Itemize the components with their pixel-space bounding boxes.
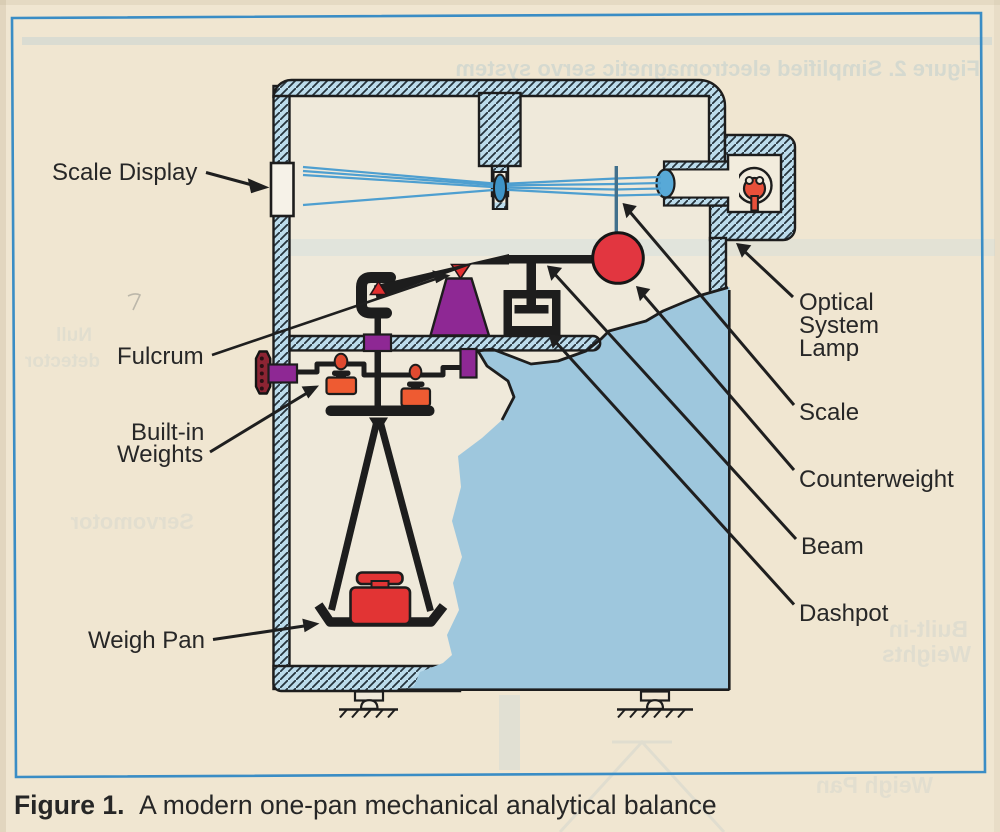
svg-text:Figure 1. A modern one-pan me: Figure 1. A modern one-pan mechanical an… [14,790,717,820]
svg-text:Scale: Scale [799,399,859,426]
svg-text:Beam: Beam [801,533,864,560]
svg-text:Weights: Weights [117,441,203,468]
svg-text:Weigh Pan: Weigh Pan [816,772,933,798]
svg-text:Weights: Weights [882,641,971,667]
svg-text:Dashpot: Dashpot [799,600,889,627]
svg-text:Scale Display: Scale Display [52,159,197,186]
svg-text:Built-in: Built-in [889,616,968,642]
svg-text:Null: Null [56,325,92,346]
svg-text:Figure 2. Simplified electrom: Figure 2. Simplified electromagnetic ser… [455,56,980,81]
svg-text:Counterweight: Counterweight [799,466,954,493]
svg-text:Lamp: Lamp [799,335,859,362]
svg-text:detector: detector [24,351,100,372]
svg-text:Fulcrum: Fulcrum [117,343,204,370]
svg-text:Servomotor: Servomotor [70,509,194,534]
svg-text:Weigh Pan: Weigh Pan [88,627,205,654]
